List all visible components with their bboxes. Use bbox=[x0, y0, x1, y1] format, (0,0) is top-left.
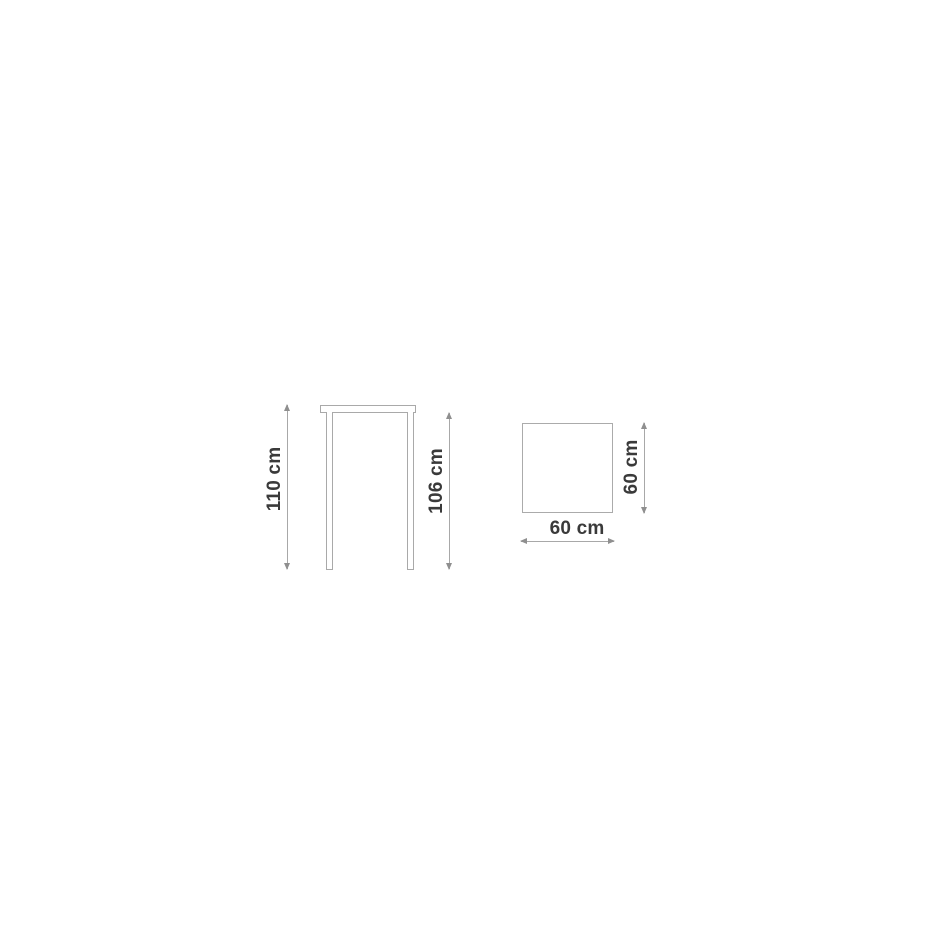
dimension-line-depth bbox=[644, 423, 645, 513]
table-leg-right bbox=[407, 412, 414, 570]
table-top-panel bbox=[320, 405, 416, 413]
dimension-diagram: 110 cm 106 cm 60 cm 60 cm bbox=[0, 0, 950, 950]
dimension-line-overall-height bbox=[287, 405, 288, 569]
dimension-label-overall-height: 110 cm bbox=[264, 447, 286, 512]
dimension-label-width: 60 cm bbox=[550, 518, 605, 540]
table-top-plan-outline bbox=[522, 423, 613, 513]
table-leg-left bbox=[326, 412, 333, 570]
dimension-line-undertop-height bbox=[449, 413, 450, 569]
dimension-line-width bbox=[521, 541, 614, 542]
dimension-label-undertop-height: 106 cm bbox=[426, 448, 448, 514]
dimension-label-depth: 60 cm bbox=[621, 440, 643, 495]
